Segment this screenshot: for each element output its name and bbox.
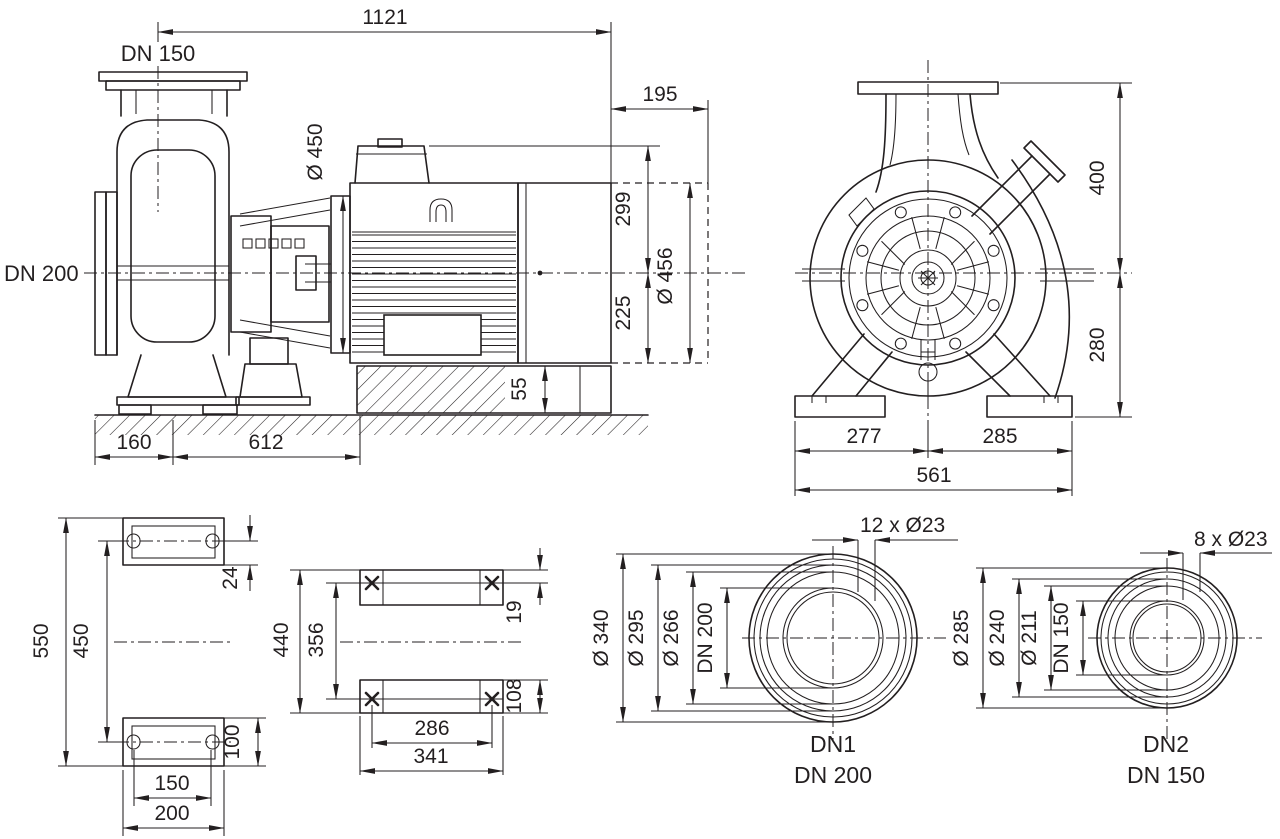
dim-foot-overall-width: 561 xyxy=(916,464,951,487)
support-pad-view: 550 450 24 100 150 200 xyxy=(30,515,266,836)
dim-dn2-outer-dia: Ø 285 xyxy=(950,609,973,666)
label-discharge-flange: DN 150 xyxy=(121,41,196,66)
dim-pads-width: 200 xyxy=(154,802,189,825)
volute-casing xyxy=(99,72,247,414)
end-view-body xyxy=(795,60,1132,420)
flange-dn2-view: 8 x Ø23 Ø 285 Ø 240 Ø 211 DN 150 DN2 DN … xyxy=(950,528,1272,788)
dim-front-offset: 160 xyxy=(116,431,151,454)
dim-center-to-top: 299 xyxy=(612,191,635,226)
pump-dimensional-drawing: 1121 195 299 225 Ø 456 Ø 450 55 160 612 … xyxy=(0,0,1280,839)
dim-dn1-nominal-bore: DN 200 xyxy=(694,602,717,673)
dim-foot-left: 277 xyxy=(846,425,881,448)
dim-pads-hole-pitch-v: 450 xyxy=(70,623,93,658)
label-dn2-port-id: DN2 xyxy=(1143,731,1189,757)
dim-overall-length: 1121 xyxy=(362,6,407,29)
dim-foot-right: 285 xyxy=(982,425,1017,448)
dim-dn2-bolt-pattern: 8 x Ø23 xyxy=(1194,528,1268,551)
dim-center-to-base: 225 xyxy=(612,295,635,330)
feet-top-pad xyxy=(360,570,503,605)
dim-pads-overall-height: 550 xyxy=(30,623,53,658)
support-feet xyxy=(795,334,1072,417)
motor-feet-view: 440 356 19 108 286 341 xyxy=(270,548,548,775)
ground-line xyxy=(95,415,648,435)
support-pad-dimensions: 550 450 24 100 150 200 xyxy=(30,515,266,836)
dim-dn1-outer-dia: Ø 340 xyxy=(590,609,613,666)
dim-feet-hole-pitch-v: 356 xyxy=(305,622,328,657)
dim-dn2-bolt-circle: Ø 240 xyxy=(986,609,1009,666)
dim-pads-top-hole-offset: 24 xyxy=(219,566,242,590)
dim-rear-overhang: 195 xyxy=(642,83,677,106)
motor-foundation xyxy=(357,366,611,413)
suction-nozzle-diagonal xyxy=(972,141,1065,234)
dim-center-to-foot-bottom: 280 xyxy=(1086,327,1109,362)
dim-feet-overall-width: 341 xyxy=(413,745,448,768)
dim-feet-top-hole-offset: 19 xyxy=(503,600,526,623)
pad-bottom xyxy=(116,718,231,766)
flange-dn1-view: 12 x Ø23 Ø 340 Ø 295 Ø 266 DN 200 DN1 DN… xyxy=(590,514,958,788)
dim-feet-overall-length: 440 xyxy=(270,622,293,657)
dim-motor-flange-dia: Ø 450 xyxy=(304,123,327,180)
dim-center-to-flange-top: 400 xyxy=(1086,160,1109,195)
end-view: 400 280 277 285 561 xyxy=(795,60,1132,496)
dim-fan-cover-dia: Ø 456 xyxy=(654,247,677,304)
pad-top xyxy=(116,518,231,565)
label-suction-flange: DN 200 xyxy=(4,261,79,286)
label-dn1-port-size: DN 200 xyxy=(794,762,872,788)
dim-dn2-raised-face: Ø 211 xyxy=(1018,610,1041,666)
end-view-dimensions: 400 280 277 285 561 xyxy=(795,83,1132,496)
motor xyxy=(331,139,518,363)
motor-feet-dimensions: 440 356 19 108 286 341 xyxy=(270,548,548,775)
label-dn1-port-id: DN1 xyxy=(810,731,856,757)
dim-pads-hole-pitch-h: 150 xyxy=(154,772,189,795)
technical-drawing-canvas: 1121 195 299 225 Ø 456 Ø 450 55 160 612 … xyxy=(0,0,1280,839)
bearing-bracket xyxy=(231,198,331,405)
dim-feet-hole-pitch-h: 286 xyxy=(414,717,449,740)
side-view: 1121 195 299 225 Ø 456 Ø 450 55 160 612 … xyxy=(4,6,745,465)
feet-bottom-pad xyxy=(360,680,503,713)
dim-base-length: 612 xyxy=(248,431,283,454)
dim-dn2-nominal-bore: DN 150 xyxy=(1050,602,1073,673)
flange-dn2-bolt-slot: 8 x Ø23 xyxy=(1140,528,1272,600)
dim-dn1-raised-face: Ø 266 xyxy=(660,609,683,666)
dim-dn1-bolt-circle: Ø 295 xyxy=(625,609,648,666)
dim-pads-bottom-pad-height: 100 xyxy=(221,724,244,759)
dim-dn1-bolt-pattern: 12 x Ø23 xyxy=(860,514,945,537)
label-dn2-port-size: DN 150 xyxy=(1127,762,1205,788)
dim-foundation-height: 55 xyxy=(508,377,531,400)
dim-feet-bottom-pad-height: 108 xyxy=(503,678,526,713)
